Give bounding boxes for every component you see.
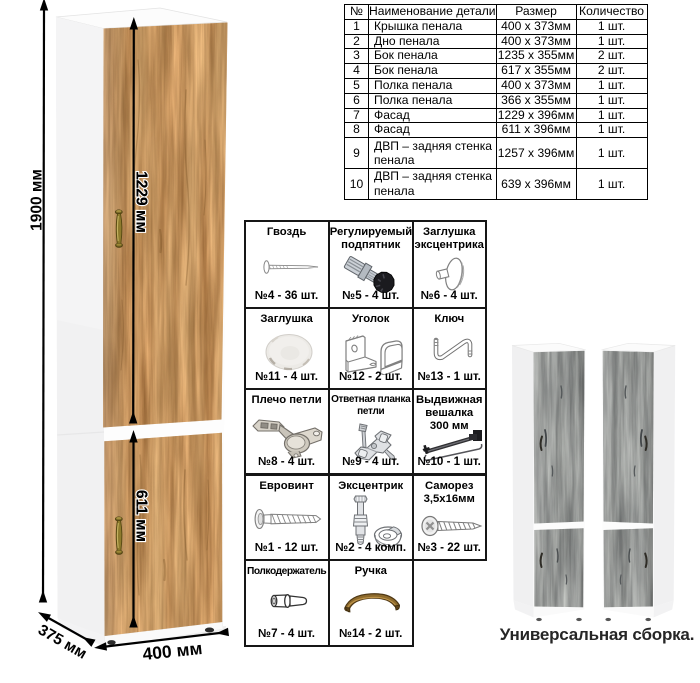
svg-text:611 мм: 611 мм [133, 490, 150, 542]
svg-text:1229 мм: 1229 мм [133, 171, 150, 233]
svg-text:1900 мм: 1900 мм [29, 169, 46, 231]
